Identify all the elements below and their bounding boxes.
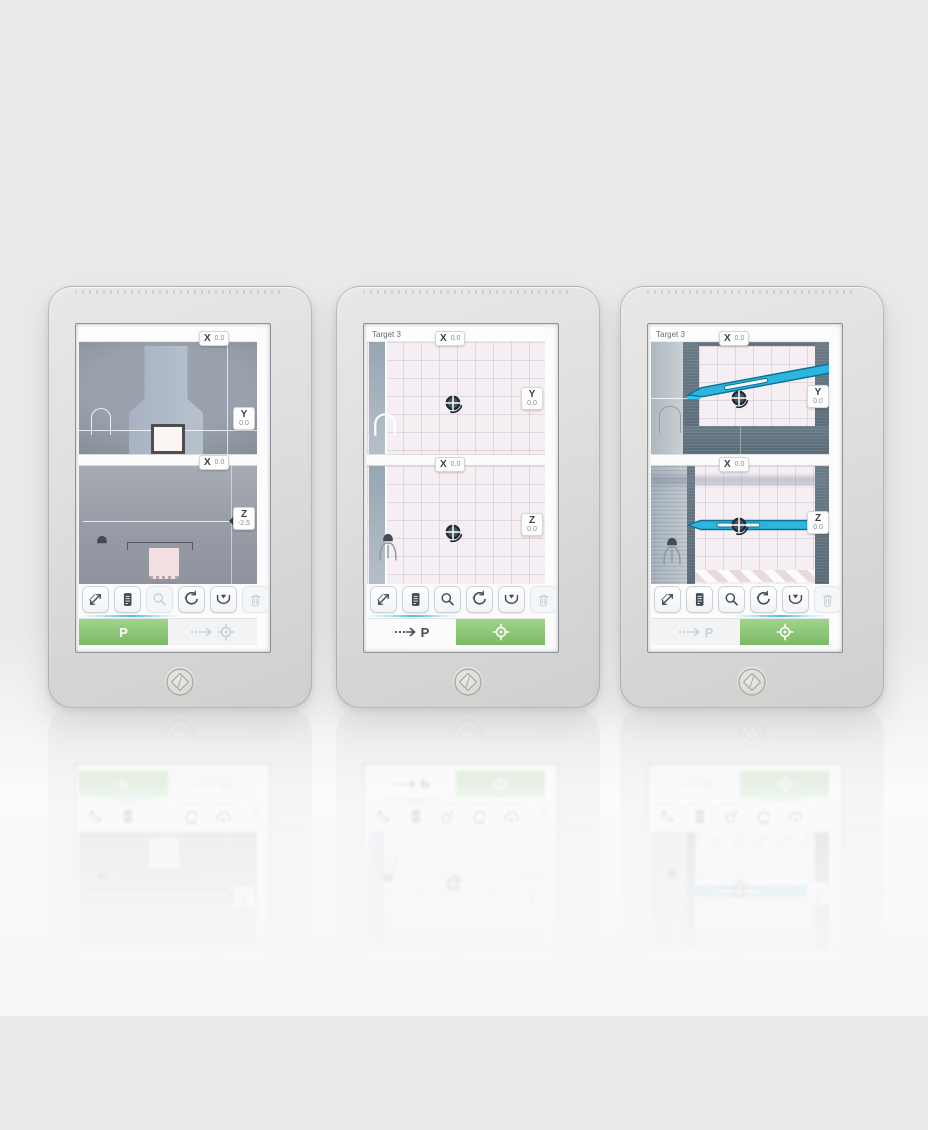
trash-tool-button xyxy=(242,804,269,831)
hazard-stripe-band xyxy=(695,834,815,846)
x-axis-tag: X 0.0 xyxy=(435,1070,465,1085)
document-tool-button xyxy=(114,804,141,831)
x-crosshair-line xyxy=(231,466,232,584)
measure-icon xyxy=(658,808,677,827)
capture-icon xyxy=(786,808,805,827)
axis-value: 0.0 xyxy=(451,948,461,956)
sagittal-view-panel xyxy=(79,832,257,950)
screen-titlebar xyxy=(79,1074,257,1089)
device-reflection: Target 3 xyxy=(620,708,884,1130)
top-ridge-texture xyxy=(647,1122,857,1126)
progress-bar xyxy=(79,615,182,617)
measure-icon xyxy=(658,590,677,609)
x-crosshair-line xyxy=(227,962,228,1074)
device-1: P X 0.0 Y 0.0 xyxy=(48,286,312,708)
magnifier-tool-button[interactable] xyxy=(434,586,461,613)
screen-content: Target 3 xyxy=(651,775,829,1089)
scene: P X 0.0 Y 0.0 xyxy=(0,0,928,1016)
magnifier-icon xyxy=(722,808,741,827)
document-icon xyxy=(690,808,709,827)
measure-icon xyxy=(374,590,393,609)
measure-tool-button[interactable] xyxy=(82,586,109,613)
screen-content: Target 3 xyxy=(367,775,545,1089)
document-icon xyxy=(118,808,137,827)
axis-label: Z xyxy=(529,890,535,901)
x-axis-tag: X 0.0 xyxy=(435,944,465,959)
axis-label: Z xyxy=(815,892,821,903)
crosshair-target-icon xyxy=(492,775,510,793)
diamond-logo-icon xyxy=(453,667,483,697)
trash-icon xyxy=(246,808,265,827)
probe-mode-button[interactable]: P xyxy=(79,619,168,645)
probe-arch-icon xyxy=(91,981,111,1008)
axis-tags-layer: X 0.0 Y 0.0 X 0.0 Z 0.0 xyxy=(367,775,545,1089)
y-crosshair-line xyxy=(79,985,257,986)
progress-strip xyxy=(651,614,829,618)
probe-arch-icon xyxy=(91,408,111,435)
diamond-logo-icon xyxy=(453,719,483,749)
action-buttons: P xyxy=(79,618,257,645)
trash-tool-button[interactable] xyxy=(530,586,557,613)
depth-arrow-icon xyxy=(225,517,233,525)
person-icon xyxy=(375,854,401,888)
target-reticle-icon xyxy=(728,514,750,536)
sagittal-view-panel[interactable] xyxy=(651,466,829,584)
probe-mode-button[interactable]: P xyxy=(367,619,456,645)
screen-title: Target 3 xyxy=(367,1078,401,1087)
progress-strip xyxy=(79,798,257,802)
needle-graphic xyxy=(686,1015,829,1054)
reset-tool-button[interactable] xyxy=(178,586,205,613)
logo-button xyxy=(453,719,483,749)
document-tool-button[interactable] xyxy=(402,586,429,613)
transverse-view-panel[interactable] xyxy=(367,342,545,454)
z-axis-tag: Z 0.0 xyxy=(807,882,829,905)
go-to-target-button xyxy=(456,771,545,797)
reset-tool-button xyxy=(466,804,493,831)
target-reticle-icon xyxy=(442,873,464,895)
progress-bar xyxy=(731,615,829,617)
dashed-arrow-icon xyxy=(394,778,416,790)
person-icon xyxy=(89,852,115,886)
probe-mode-button: P xyxy=(367,771,456,797)
screen-titlebar: Target 3 xyxy=(367,1074,545,1089)
x-axis-tag: X 0.0 xyxy=(719,1070,749,1085)
go-to-target-button[interactable] xyxy=(168,619,257,645)
logo-button[interactable] xyxy=(737,667,767,697)
probe-arch-icon xyxy=(371,978,399,1006)
top-ridge-texture xyxy=(75,1122,285,1126)
screen-title: Target 3 xyxy=(367,330,401,339)
axis-label: X xyxy=(204,1072,211,1083)
screen-titlebar xyxy=(79,327,257,342)
toolbar xyxy=(79,802,257,832)
axis-tags-layer: X 0.0 Y 0.0 X 0.0 Z -2.5 xyxy=(79,775,257,1089)
needle-guide-block xyxy=(149,837,179,868)
magnifier-tool-button xyxy=(146,804,173,831)
dashed-arrow-icon xyxy=(190,626,212,638)
logo-button xyxy=(737,719,767,749)
axis-value: 0.0 xyxy=(813,884,823,892)
dashed-arrow-icon xyxy=(394,626,416,638)
reset-tool-button[interactable] xyxy=(750,586,777,613)
trash-icon xyxy=(534,590,553,609)
sagittal-view-panel[interactable] xyxy=(79,466,257,584)
axis-value: 0.0 xyxy=(215,950,225,958)
trash-tool-button xyxy=(530,804,557,831)
axis-value: -2.5 xyxy=(238,888,250,896)
target-reticle-icon xyxy=(442,521,464,543)
document-tool-button xyxy=(402,804,429,831)
axis-value: 0.0 xyxy=(813,1010,823,1018)
x-axis-tag: X 0.0 xyxy=(719,944,749,959)
target-reticle-icon xyxy=(728,387,750,409)
screen-titlebar: Target 3 xyxy=(651,327,829,342)
reset-icon xyxy=(754,590,773,609)
cyan-axis-tick xyxy=(687,1017,701,1020)
axis-label: X xyxy=(724,946,731,957)
toolbar xyxy=(651,584,829,614)
magnifier-icon xyxy=(150,590,169,609)
measure-tool-button xyxy=(82,804,109,831)
panel-divider xyxy=(367,950,545,962)
progress-strip xyxy=(79,614,257,618)
probe-mode-label: P xyxy=(421,625,430,640)
axis-label: X xyxy=(440,1072,447,1083)
measure-tool-button xyxy=(654,804,681,831)
frame-right-bar xyxy=(815,832,829,950)
frame-bottom-bar xyxy=(683,426,829,454)
probe-mode-label: P xyxy=(421,777,430,792)
transverse-view-panel xyxy=(651,962,829,1074)
magnifier-icon xyxy=(438,808,457,827)
needle-graphic xyxy=(687,885,829,897)
z-crosshair-line xyxy=(83,521,237,522)
probe-mode-label: P xyxy=(119,625,128,640)
document-tool-button[interactable] xyxy=(686,586,713,613)
person-icon xyxy=(659,532,685,566)
axis-tags-layer: X 0.0 Y 0.0 X 0.0 Z 0.0 xyxy=(651,775,829,1089)
dashed-arrow-icon xyxy=(678,778,700,790)
screen-content: P X 0.0 Y 0.0 xyxy=(79,327,257,641)
motion-blur-band xyxy=(651,476,829,485)
motion-blur-band xyxy=(651,931,829,940)
diamond-logo-icon xyxy=(737,719,767,749)
device-3-screen: Target 3 xyxy=(647,323,843,653)
out-of-plane-strip xyxy=(369,832,387,950)
progress-bar xyxy=(367,799,460,801)
needle-guide-block xyxy=(149,548,179,579)
crosshair-target-icon xyxy=(492,623,510,641)
reset-tool-button xyxy=(750,804,777,831)
screen-content: Target 3 xyxy=(367,327,545,641)
dashed-arrow-icon xyxy=(678,626,700,638)
probe-mode-label: P xyxy=(705,777,714,792)
transverse-view-panel xyxy=(367,962,545,1074)
probe-mode-button: P xyxy=(651,771,740,797)
x-axis-tag: X 0.0 xyxy=(199,1070,229,1085)
screen-titlebar: Target 3 xyxy=(367,327,545,342)
target-reticle-icon xyxy=(728,880,750,902)
toolbar xyxy=(367,584,545,614)
axis-label: X xyxy=(440,946,447,957)
device-1-screen: P X 0.0 Y 0.0 xyxy=(75,323,271,653)
y-axis-tag: Y 0.0 xyxy=(521,1006,543,1029)
logo-button[interactable] xyxy=(453,667,483,697)
capture-tool-button[interactable] xyxy=(210,586,237,613)
action-buttons: P xyxy=(367,771,545,798)
probe-mode-button[interactable]: P xyxy=(651,619,740,645)
document-icon xyxy=(406,590,425,609)
probe-arch-icon xyxy=(659,406,681,433)
axis-label: X xyxy=(204,948,211,959)
x-crosshair-line xyxy=(227,342,228,454)
target-reticle-icon xyxy=(728,1007,750,1029)
frame-left-bar xyxy=(683,962,699,1074)
z-axis-tag: Z -2.5 xyxy=(233,886,255,909)
panel-divider xyxy=(79,454,257,466)
screen-content: P X 0.0 Y 0.0 xyxy=(79,775,257,1089)
y-axis-tag: Y 0.0 xyxy=(807,1008,829,1031)
trash-tool-button xyxy=(814,804,841,831)
x-axis-tag: X 0.0 xyxy=(199,946,229,961)
capture-icon xyxy=(502,808,521,827)
logo-button[interactable] xyxy=(165,667,195,697)
frame-top-bar xyxy=(699,1070,815,1074)
probe-mode-label: P xyxy=(705,625,714,640)
trash-icon xyxy=(246,590,265,609)
toolbar xyxy=(367,802,545,832)
axis-value: 0.0 xyxy=(239,988,249,996)
capture-icon xyxy=(502,590,521,609)
crosshair-target-icon xyxy=(776,775,794,793)
panel-divider xyxy=(651,454,829,466)
probe-mode-label: P xyxy=(119,777,128,792)
device-2-screen: Target 3 xyxy=(363,323,559,653)
frame-left-bar xyxy=(687,832,695,950)
reset-icon xyxy=(470,808,489,827)
progress-strip xyxy=(367,614,545,618)
screen-title: Target 3 xyxy=(651,1078,685,1087)
top-ridge-texture xyxy=(75,290,285,294)
screen-title: Target 3 xyxy=(651,330,685,339)
out-of-plane-strip xyxy=(651,962,683,1074)
reset-icon xyxy=(470,590,489,609)
axis-label: Z xyxy=(241,896,247,907)
action-buttons: P xyxy=(651,771,829,798)
device-2-screen: Target 3 xyxy=(363,763,559,1093)
x-crosshair-line xyxy=(740,426,741,454)
device-3-screen: Target 3 xyxy=(647,763,843,1093)
screen-titlebar: Target 3 xyxy=(651,1074,829,1089)
capture-tool-button xyxy=(782,804,809,831)
measure-icon xyxy=(86,590,105,609)
probe-arch-icon xyxy=(659,983,681,1010)
top-ridge-texture xyxy=(363,290,573,294)
transverse-view-panel xyxy=(79,962,257,1074)
diamond-logo-icon xyxy=(165,719,195,749)
capture-icon xyxy=(214,808,233,827)
sagittal-view-panel xyxy=(367,832,545,950)
sagittal-view-panel xyxy=(651,832,829,950)
reset-tool-button xyxy=(178,804,205,831)
axis-label: X xyxy=(724,1072,731,1083)
go-to-target-button[interactable] xyxy=(740,619,829,645)
magnifier-icon xyxy=(722,590,741,609)
document-tool-button[interactable] xyxy=(114,586,141,613)
trash-icon xyxy=(818,590,837,609)
transverse-view-panel[interactable] xyxy=(79,342,257,454)
device-3: Target 3 xyxy=(620,286,884,708)
capture-icon xyxy=(786,590,805,609)
progress-bar xyxy=(731,799,829,801)
axis-value: 0.0 xyxy=(451,1074,461,1082)
transverse-view-panel[interactable] xyxy=(651,342,829,454)
panel-divider xyxy=(651,950,829,962)
panel-divider xyxy=(79,950,257,962)
progress-strip xyxy=(651,798,829,802)
magnifier-tool-button[interactable] xyxy=(718,586,745,613)
target-bracket xyxy=(127,866,193,874)
axis-value: 0.0 xyxy=(735,1074,745,1082)
go-to-target-button xyxy=(168,771,257,797)
target-box xyxy=(151,424,185,454)
crosshair-target-icon xyxy=(217,623,235,641)
device-reflection: Target 3 xyxy=(336,708,600,1130)
progress-bar xyxy=(79,799,182,801)
y-crosshair-line xyxy=(651,1017,699,1018)
magnifier-tool-button xyxy=(718,804,745,831)
diamond-logo-icon xyxy=(737,667,767,697)
axis-value: 0.0 xyxy=(735,948,745,956)
document-tool-button xyxy=(686,804,713,831)
go-to-target-button xyxy=(740,771,829,797)
crosshair-target-icon xyxy=(217,775,235,793)
reset-icon xyxy=(182,808,201,827)
axis-label: Y xyxy=(241,996,248,1007)
axis-label: Y xyxy=(529,1016,536,1027)
depth-arrow-icon xyxy=(225,891,233,899)
diamond-logo-icon xyxy=(165,667,195,697)
target-reticle-icon xyxy=(442,1002,464,1024)
measure-tool-button[interactable] xyxy=(370,586,397,613)
capture-tool-button[interactable] xyxy=(498,586,525,613)
trash-tool-button[interactable] xyxy=(242,586,269,613)
z-crosshair-line xyxy=(83,894,237,895)
out-of-plane-strip xyxy=(369,466,387,584)
crosshair-target-icon xyxy=(776,623,794,641)
trash-icon xyxy=(534,808,553,827)
measure-tool-button xyxy=(370,804,397,831)
sagittal-view-panel[interactable] xyxy=(367,466,545,584)
action-buttons: P xyxy=(367,618,545,645)
magnifier-tool-button xyxy=(434,804,461,831)
go-to-target-button[interactable] xyxy=(456,619,545,645)
capture-tool-button xyxy=(498,804,525,831)
x-crosshair-line xyxy=(740,962,741,990)
trash-icon xyxy=(818,808,837,827)
probe-mode-button: P xyxy=(79,771,168,797)
frame-top-bar xyxy=(699,342,815,346)
device-1-screen: P X 0.0 Y 0.0 xyxy=(75,763,271,1093)
toolbar xyxy=(651,802,829,832)
frame-right-bar xyxy=(815,962,829,1074)
magnifier-icon xyxy=(150,808,169,827)
person-icon xyxy=(89,530,115,564)
progress-bar xyxy=(367,615,460,617)
document-icon xyxy=(406,808,425,827)
top-ridge-texture xyxy=(647,290,857,294)
axis-value: 0.0 xyxy=(527,882,537,890)
toolbar xyxy=(79,584,257,614)
measure-tool-button[interactable] xyxy=(654,586,681,613)
action-buttons: P xyxy=(79,771,257,798)
reset-icon xyxy=(754,808,773,827)
target-box xyxy=(151,962,185,992)
capture-icon xyxy=(214,590,233,609)
device-2: Target 3 xyxy=(336,286,600,708)
top-ridge-texture xyxy=(363,1122,573,1126)
measure-icon xyxy=(86,808,105,827)
magnifier-icon xyxy=(438,590,457,609)
device-reflection: P X 0.0 Y 0.0 xyxy=(48,708,312,1130)
logo-button xyxy=(165,719,195,749)
probe-arch-icon xyxy=(371,410,399,438)
person-icon xyxy=(375,528,401,562)
magnifier-tool-button[interactable] xyxy=(146,586,173,613)
progress-strip xyxy=(367,798,545,802)
phantom-shape xyxy=(129,962,203,1070)
panel-divider xyxy=(367,454,545,466)
document-icon xyxy=(118,590,137,609)
grid-window xyxy=(699,990,815,1070)
measure-icon xyxy=(374,808,393,827)
axis-label: Y xyxy=(815,1018,822,1029)
hazard-stripe-band xyxy=(695,570,815,582)
needle-graphic xyxy=(687,519,829,531)
out-of-plane-strip xyxy=(651,832,687,950)
target-reticle-icon xyxy=(442,392,464,414)
x-crosshair-line xyxy=(231,832,232,950)
out-of-plane-strip xyxy=(369,962,387,1074)
frame-bottom-bar xyxy=(683,962,829,990)
axis-value: 0.0 xyxy=(527,1008,537,1016)
reset-tool-button[interactable] xyxy=(466,586,493,613)
axis-value: 0.0 xyxy=(215,1074,225,1082)
screen-content: Target 3 xyxy=(651,327,829,641)
document-icon xyxy=(690,590,709,609)
y-axis-tag: Y 0.0 xyxy=(233,986,255,1009)
capture-tool-button[interactable] xyxy=(782,586,809,613)
z-axis-tag: Z 0.0 xyxy=(521,880,543,903)
person-icon xyxy=(659,850,685,884)
dashed-arrow-icon xyxy=(190,778,212,790)
trash-tool-button[interactable] xyxy=(814,586,841,613)
reset-icon xyxy=(182,590,201,609)
action-buttons: P xyxy=(651,618,829,645)
capture-tool-button xyxy=(210,804,237,831)
